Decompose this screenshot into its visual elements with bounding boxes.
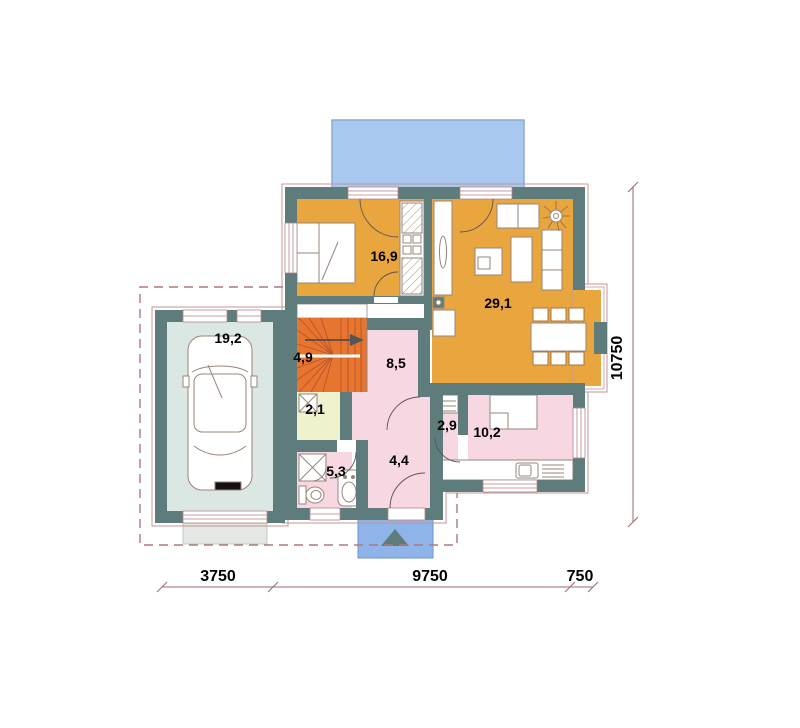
window-utility-right [573,408,585,458]
label-bedroom: 16,9 [370,248,397,264]
label-utility: 10,2 [473,424,500,440]
wall-closet-bottom [285,440,337,452]
side-table [511,237,532,282]
fridge [433,310,455,336]
dim-right-side: 10750 [609,336,626,381]
wardrobe-box [403,235,411,243]
toilet-tank [299,486,306,504]
label-bath: 5,3 [326,463,346,479]
wall-kitchen-divider [424,199,432,330]
wall-entry-right [430,395,443,520]
bedroom-door-opening [374,297,398,303]
label-closet: 2,1 [305,401,325,417]
label-entry: 4,4 [389,452,409,468]
window-utility [483,480,537,492]
kitchen-sink [440,236,447,268]
wall-garage-left [155,310,167,523]
wall-bath-entry [356,440,368,508]
dim-bottom-left: 3750 [200,568,236,585]
plant-pot-inner [554,214,559,219]
label-stairs: 4,9 [293,349,313,365]
terrace [332,120,524,188]
wardrobe-hatch-bottom [402,258,422,294]
bay-window-pier [594,322,607,354]
dim-bottom-right: 750 [567,568,594,585]
stair-landing [297,304,367,318]
corridor-floor [352,392,430,440]
toilet-bowl-inner [311,491,321,500]
wall-wc-utility [458,395,468,435]
label-garage: 19,2 [214,330,241,346]
floor-plan-svg: 19,2 16,9 29,1 4,9 8,5 2,1 2,9 10,2 5,3 … [0,0,800,728]
coffee-table-inner [478,257,490,269]
car-mirror-right [251,376,257,387]
washbasin-bowl [342,482,356,502]
label-living: 29,1 [484,295,511,311]
utility-sink-basin [519,465,531,476]
wardrobe-box [413,246,421,254]
wall-closet-right [340,392,352,440]
wall-house-right-upper [573,187,585,290]
label-wc: 2,9 [437,417,457,433]
terrace-door-living [460,187,512,199]
kitchen-hob-dot [436,300,441,305]
room-entry-floor [364,440,430,508]
label-hall: 8,5 [386,355,406,371]
wall-living-bottom [418,383,585,395]
wall-garage-right [273,310,285,523]
floor-plan-page: 19,2 16,9 29,1 4,9 8,5 2,1 2,9 10,2 5,3 … [0,0,800,728]
entrance-door-opening [388,508,425,520]
car-body [188,336,252,490]
sofa-right [542,230,562,290]
dim-bottom-middle: 9750 [412,568,448,585]
wardrobe-box [403,246,411,254]
window-bedroom-left [285,223,297,273]
car [183,336,257,490]
garage-door [183,511,267,523]
wall-top [285,187,585,199]
car-bumper [215,482,241,490]
dining-table [531,323,586,351]
wardrobe-hatch-top [402,203,422,233]
car-mirror-left [183,376,189,387]
terrace-door-bedroom [348,187,398,199]
wall-bedroom-bottom [297,296,424,304]
wardrobe-box [413,235,421,243]
